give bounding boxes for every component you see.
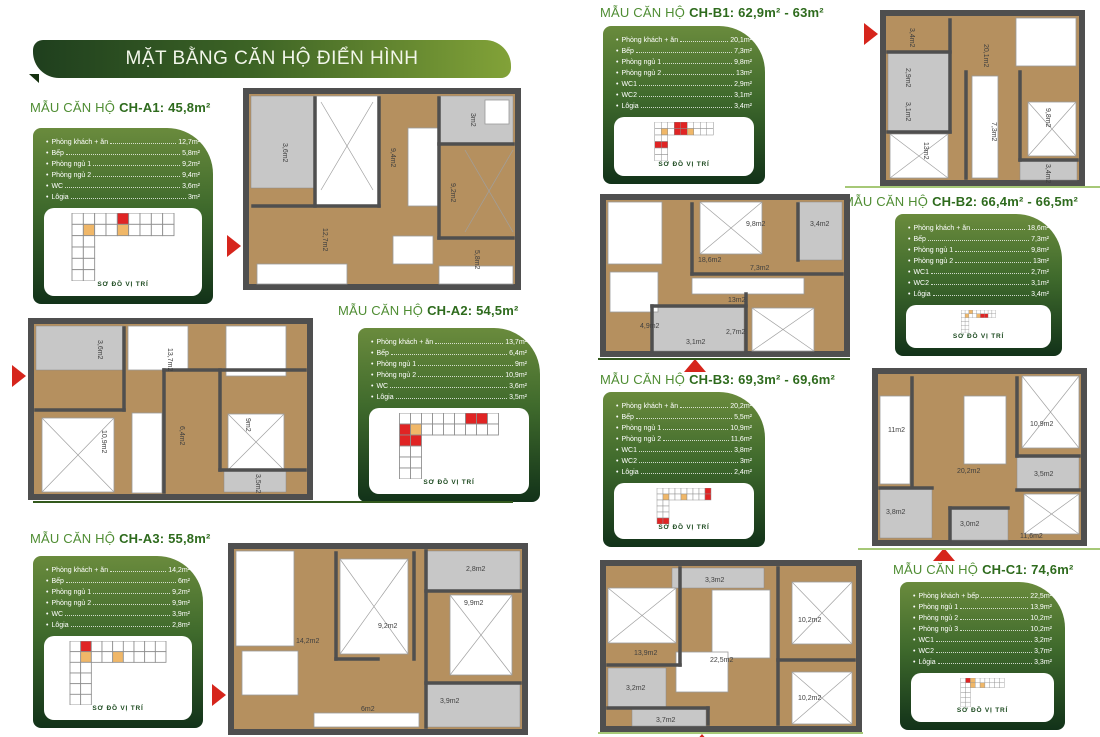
plan-room-label: 10,2m2 (798, 695, 821, 702)
room-name: Lôgia (51, 192, 68, 203)
plan-room-label: 5,8m2 (473, 250, 480, 270)
spec-row: •Phòng ngủ 19,8m² (908, 245, 1049, 256)
room-name: Phòng khách + ăn (376, 337, 433, 348)
room-area: 9,2m² (182, 159, 200, 170)
plan-room-label: 9,2m2 (449, 183, 456, 203)
room-name: Phòng khách + ăn (51, 565, 108, 576)
room-area: 10,9m² (505, 370, 527, 381)
plan-room-label: 13,9m2 (634, 650, 657, 657)
plan-room-label: 10,2m2 (798, 617, 821, 624)
room-area: 6,4m² (509, 348, 527, 359)
room-name: WC (51, 609, 63, 620)
heading-prefix: MẪU CĂN HỘ (30, 531, 115, 546)
apartment-heading-ch-b1: MẪU CĂN HỘCH-B1: 62,9m² - 63m² (600, 5, 824, 20)
room-area: 3,6m² (182, 181, 200, 192)
room-name: Phòng khách + ăn (621, 401, 678, 412)
spec-row: •Phòng ngủ 19,2m² (46, 159, 200, 170)
floor-plan-ch-c1: 3,3m213,9m222,5m210,2m210,2m23,2m23,7m2 (600, 560, 862, 732)
spec-row: •Phòng ngủ 213m² (908, 256, 1049, 267)
room-area: 3,2m² (1034, 635, 1052, 646)
room-name: Phòng ngủ 2 (51, 170, 91, 181)
room-area: 3,1m² (1031, 278, 1049, 289)
room-name: Lôgia (376, 392, 393, 403)
room-area: 9,8m² (734, 57, 752, 68)
plan-room-label: 3,0m2 (960, 521, 980, 528)
room-area: 6m² (178, 576, 190, 587)
spec-row: •WC23,7m² (913, 646, 1052, 657)
spec-box-ch-b3: •Phòng khách + ăn20,2m²•Bếp5,5m²•Phòng n… (603, 392, 765, 547)
spec-row: •WC12,7m² (908, 267, 1049, 278)
room-name: WC2 (621, 90, 637, 101)
spec-row: •Lôgia3m² (46, 192, 200, 203)
spec-box-ch-c1: •Phòng khách + bếp22,5m²•Phòng ngủ 113,9… (900, 582, 1065, 730)
heading-prefix: MẪU CĂN HỘ (600, 372, 685, 387)
room-area: 7,3m² (734, 46, 752, 57)
section-divider (858, 548, 1100, 550)
spec-row: •Phòng khách + bếp22,5m² (913, 591, 1052, 602)
heading-prefix: MẪU CĂN HỘ (843, 194, 928, 209)
room-name: WC2 (918, 646, 934, 657)
room-name: Bếp (51, 148, 63, 159)
plan-room-label: 3,8m2 (886, 509, 906, 516)
apartment-heading-ch-a2: MẪU CĂN HỘCH-A2: 54,5m² (338, 303, 519, 318)
floor-plan-ch-b1: 3,4m22,9m23,1m213m220,1m27,3m29,8m23,4m2 (880, 10, 1085, 186)
spec-row: •Bếp5,8m² (46, 148, 200, 159)
plan-room-label: 20,1m2 (982, 44, 989, 67)
room-area: 3,7m² (1034, 646, 1052, 657)
site-caption: SƠ ĐỒ VỊ TRÍ (910, 333, 1047, 345)
room-area: 3,4m² (734, 101, 752, 112)
plan-room-label: 7,3m2 (990, 122, 997, 142)
floor-plan-ch-b3: 11m220,2m210,9m23,5m23,8m23,0m211,6m2 (872, 368, 1087, 546)
room-area: 13m² (736, 68, 752, 79)
spec-row: •WC13,2m² (913, 635, 1052, 646)
section-divider (598, 358, 850, 360)
plan-room-label: 10,9m2 (1030, 421, 1053, 428)
section-divider (598, 732, 863, 734)
room-name: Phòng khách + ăn (621, 35, 678, 46)
spec-box-ch-b2: •Phòng khách + ăn18,6m²•Bếp7,3m²•Phòng n… (895, 214, 1062, 356)
location-card: SƠ ĐỒ VỊ TRÍ (906, 305, 1051, 348)
page-title: MẶT BẰNG CĂN HỘ ĐIỂN HÌNH (126, 48, 419, 70)
heading-title: CH-A2: 54,5m² (427, 303, 518, 318)
room-area: 2,4m² (734, 467, 752, 478)
heading-title: CH-A3: 55,8m² (119, 531, 210, 546)
site-caption: SƠ ĐỒ VỊ TRÍ (48, 705, 188, 717)
room-name: Bếp (51, 576, 63, 587)
site-caption: SƠ ĐỒ VỊ TRÍ (618, 524, 750, 536)
room-area: 10,9m² (730, 423, 752, 434)
room-area: 9,9m² (172, 598, 190, 609)
spec-row: •Phòng ngủ 113,9m² (913, 602, 1052, 613)
spec-row: •Phòng ngủ 210,9m² (371, 370, 527, 381)
heading-prefix: MẪU CĂN HỘ (600, 5, 685, 20)
plan-room-label: 4,9m2 (640, 323, 660, 330)
plan-room-label: 14,2m2 (296, 638, 319, 645)
location-grid (915, 678, 1050, 707)
apartment-heading-ch-a3: MẪU CĂN HỘCH-A3: 55,8m² (30, 531, 211, 546)
room-area: 14,2m² (168, 565, 190, 576)
apartment-heading-ch-b3: MẪU CĂN HỘCH-B3: 69,3m² - 69,6m² (600, 372, 835, 387)
heading-title: CH-B2: 66,4m² - 66,5m² (932, 194, 1078, 209)
spec-row: •Phòng khách + ăn12,7m² (46, 137, 200, 148)
room-area: 3m² (188, 192, 200, 203)
location-card: SƠ ĐỒ VỊ TRÍ (911, 673, 1054, 722)
spec-row: •Phòng ngủ 19,8m² (616, 57, 752, 68)
room-area: 20,2m² (730, 401, 752, 412)
entrance-marker-icon (12, 365, 26, 387)
heading-title: CH-A1: 45,8m² (119, 100, 210, 115)
room-area: 3,5m² (509, 392, 527, 403)
room-name: WC1 (621, 79, 637, 90)
room-name: Phòng ngủ 1 (376, 359, 416, 370)
site-caption: SƠ ĐỒ VỊ TRÍ (618, 161, 750, 173)
entrance-marker-icon (227, 235, 241, 257)
spec-row: •WC13,8m² (616, 445, 752, 456)
heading-prefix: MẪU CĂN HỘ (30, 100, 115, 115)
plan-room-label: 10,9m2 (100, 430, 107, 453)
plan-room-label: 20,2m2 (957, 468, 980, 475)
plan-room-label: 6,4m2 (178, 426, 185, 446)
plan-room-label: 3,6m2 (281, 143, 288, 163)
room-name: Phòng khách + bếp (918, 591, 979, 602)
room-area: 10,2m² (1030, 613, 1052, 624)
room-name: WC2 (621, 456, 637, 467)
room-name: Lôgia (918, 657, 935, 668)
room-name: Lôgia (621, 467, 638, 478)
spec-row: •Phòng khách + ăn14,2m² (46, 565, 190, 576)
room-area: 9,8m² (1031, 245, 1049, 256)
room-name: Phòng ngủ 1 (51, 159, 91, 170)
plan-room-label: 6m2 (361, 706, 375, 713)
spec-row: •Phòng ngủ 19,2m² (46, 587, 190, 598)
spec-row: •Phòng ngủ 310,2m² (913, 624, 1052, 635)
spec-row: •Lôgia3,4m² (616, 101, 752, 112)
room-name: Bếp (621, 46, 633, 57)
floor-plan-ch-a1: 3,6m29,4m23m29,2m212,7m25,8m2 (243, 88, 521, 290)
site-caption: SƠ ĐỒ VỊ TRÍ (915, 707, 1050, 719)
spec-row: •WC3,6m² (46, 181, 200, 192)
spec-row: •Lôgia3,5m² (371, 392, 527, 403)
section-divider (33, 501, 513, 503)
spec-row: •Lôgia2,8m² (46, 620, 190, 631)
plan-room-label: 13,7m2 (166, 348, 173, 371)
spec-row: •WC12,9m² (616, 79, 752, 90)
spec-row: •Phòng ngủ 110,9m² (616, 423, 752, 434)
room-area: 3m² (740, 456, 752, 467)
plan-room-label: 3,1m2 (686, 339, 706, 346)
room-name: Phòng ngủ 1 (918, 602, 958, 613)
plan-room-label: 2,7m2 (726, 329, 746, 336)
spec-row: •WC23,1m² (908, 278, 1049, 289)
room-area: 3,1m² (734, 90, 752, 101)
heading-prefix: MẪU CĂN HỘ (338, 303, 423, 318)
spec-row: •Lôgia2,4m² (616, 467, 752, 478)
spec-row: •Phòng ngủ 19m² (371, 359, 527, 370)
plan-room-label: 3,4m2 (1044, 164, 1051, 184)
spec-row: •WC23,1m² (616, 90, 752, 101)
room-name: Lôgia (621, 101, 638, 112)
plan-room-label: 11,6m2 (1020, 533, 1043, 540)
plan-room-label: 3,3m2 (705, 577, 725, 584)
spec-row: •Lôgia3,3m² (913, 657, 1052, 668)
room-name: Phòng khách + ăn (913, 223, 970, 234)
room-area: 10,2m² (1030, 624, 1052, 635)
room-name: Phòng khách + ăn (51, 137, 108, 148)
room-name: Bếp (376, 348, 388, 359)
room-list: •Phòng khách + bếp22,5m²•Phòng ngủ 113,9… (911, 591, 1054, 671)
page-title-banner: MẶT BẰNG CĂN HỘ ĐIỂN HÌNH (33, 40, 511, 78)
room-area: 9m² (515, 359, 527, 370)
location-grid (48, 213, 198, 281)
room-area: 22,5m² (1030, 591, 1052, 602)
apartment-heading-ch-b2: MẪU CĂN HỘCH-B2: 66,4m² - 66,5m² (843, 194, 1078, 209)
plan-room-label: 3,6m2 (96, 340, 103, 360)
spec-row: •Phòng khách + ăn20,1m² (616, 35, 752, 46)
room-name: WC1 (913, 267, 929, 278)
location-card: SƠ ĐỒ VỊ TRÍ (369, 408, 529, 494)
room-area: 11,6m² (731, 434, 752, 445)
room-name: WC2 (913, 278, 929, 289)
room-list: •Phòng khách + ăn13,7m²•Bếp6,4m²•Phòng n… (369, 337, 529, 406)
plan-room-label: 3,4m2 (810, 221, 830, 228)
plan-room-label: 12,7m2 (321, 228, 328, 251)
room-area: 3,3m² (1034, 657, 1052, 668)
apartment-heading-ch-c1: MẪU CĂN HỘCH-C1: 74,6m² (893, 562, 1074, 577)
spec-row: •Bếp6m² (46, 576, 190, 587)
room-area: 9,4m² (182, 170, 200, 181)
plan-room-label: 9,2m2 (378, 623, 398, 630)
plan-room-label: 9m2 (244, 418, 251, 432)
plan-room-label: 3,2m2 (626, 685, 646, 692)
room-area: 5,8m² (182, 148, 200, 159)
room-area: 3,8m² (734, 445, 752, 456)
room-area: 3,9m² (172, 609, 190, 620)
room-area: 7,3m² (1031, 234, 1049, 245)
floor-plan-ch-a2: 3,6m213,7m210,9m26,4m29m23,5m2 (28, 318, 313, 500)
spec-row: •WC3,9m² (46, 609, 190, 620)
plan-room-label: 13m2 (922, 142, 929, 160)
room-area: 2,8m² (172, 620, 190, 631)
location-grid (618, 122, 750, 161)
location-card: SƠ ĐỒ VỊ TRÍ (44, 636, 192, 720)
room-name: Phòng ngủ 1 (913, 245, 953, 256)
floor-plan-ch-a3: 2,8m29,9m29,2m214,2m26m23,9m2 (228, 543, 528, 735)
spec-row: •Bếp7,3m² (616, 46, 752, 57)
floor-plan-ch-b2: 18,6m29,8m23,4m27,3m213m24,9m23,1m22,7m2 (600, 194, 850, 357)
spec-row: •Phòng khách + ăn13,7m² (371, 337, 527, 348)
heading-prefix: MẪU CĂN HỘ (893, 562, 978, 577)
room-name: WC1 (918, 635, 934, 646)
spec-row: •Lôgia3,4m² (908, 289, 1049, 300)
site-caption: SƠ ĐỒ VỊ TRÍ (373, 479, 525, 491)
plan-room-label: 11m2 (888, 427, 905, 434)
spec-box-ch-a3: •Phòng khách + ăn14,2m²•Bếp6m²•Phòng ngủ… (33, 556, 203, 728)
room-name: Lôgia (51, 620, 68, 631)
location-grid (910, 310, 1047, 333)
plan-room-label: 3,7m2 (656, 717, 676, 724)
room-list: •Phòng khách + ăn20,2m²•Bếp5,5m²•Phòng n… (614, 401, 754, 481)
spec-box-ch-a1: •Phòng khách + ăn12,7m²•Bếp5,8m²•Phòng n… (33, 128, 213, 304)
room-area: 5,5m² (734, 412, 752, 423)
room-name: Lôgia (913, 289, 930, 300)
spec-row: •Phòng khách + ăn18,6m² (908, 223, 1049, 234)
plan-room-label: 3,5m2 (254, 474, 261, 494)
location-card: SƠ ĐỒ VỊ TRÍ (614, 483, 754, 539)
room-name: Phòng ngủ 1 (621, 423, 661, 434)
room-name: Phòng ngủ 1 (51, 587, 91, 598)
location-grid (48, 641, 188, 705)
spec-row: •Phòng ngủ 211,6m² (616, 434, 752, 445)
room-area: 13,9m² (1030, 602, 1052, 613)
plan-room-label: 9,8m2 (746, 221, 766, 228)
location-card: SƠ ĐỒ VỊ TRÍ (44, 208, 202, 296)
spec-box-ch-b1: •Phòng khách + ăn20,1m²•Bếp7,3m²•Phòng n… (603, 26, 765, 184)
spec-row: •Phòng ngủ 210,2m² (913, 613, 1052, 624)
spec-row: •WC3,6m² (371, 381, 527, 392)
plan-room-label: 3,9m2 (440, 698, 460, 705)
room-name: Phòng ngủ 2 (913, 256, 953, 267)
room-area: 9,2m² (172, 587, 190, 598)
entrance-marker-icon (864, 23, 878, 45)
plan-room-label: 7,3m2 (750, 265, 770, 272)
room-area: 20,1m² (730, 35, 752, 46)
room-area: 12,7m² (178, 137, 200, 148)
location-grid (373, 413, 525, 479)
room-list: •Phòng khách + ăn20,1m²•Bếp7,3m²•Phòng n… (614, 35, 754, 115)
room-name: Phòng ngủ 2 (51, 598, 91, 609)
plan-room-label: 9,4m2 (389, 148, 396, 168)
plan-room-label: 3m2 (469, 113, 476, 127)
spec-row: •WC23m² (616, 456, 752, 467)
plan-room-label: 3,5m2 (1034, 471, 1054, 478)
entrance-marker-icon (212, 684, 226, 706)
room-area: 2,7m² (1031, 267, 1049, 278)
room-name: WC1 (621, 445, 637, 456)
heading-title: CH-B3: 69,3m² - 69,6m² (689, 372, 835, 387)
room-name: Bếp (621, 412, 633, 423)
plan-room-label: 2,9m2 (904, 68, 911, 88)
apartment-heading-ch-a1: MẪU CĂN HỘCH-A1: 45,8m² (30, 100, 211, 115)
room-area: 18,6m² (1027, 223, 1049, 234)
room-area: 3,4m² (1031, 289, 1049, 300)
heading-title: CH-C1: 74,6m² (982, 562, 1073, 577)
spec-row: •Phòng ngủ 29,9m² (46, 598, 190, 609)
room-name: Phòng ngủ 1 (621, 57, 661, 68)
room-name: WC (376, 381, 388, 392)
plan-room-label: 18,6m2 (698, 257, 721, 264)
room-name: Phòng ngủ 2 (621, 434, 661, 445)
spec-row: •Phòng ngủ 213m² (616, 68, 752, 79)
room-area: 3,6m² (509, 381, 527, 392)
spec-row: •Phòng ngủ 29,4m² (46, 170, 200, 181)
location-card: SƠ ĐỒ VỊ TRÍ (614, 117, 754, 176)
room-name: Phòng ngủ 2 (621, 68, 661, 79)
plan-room-label: 3,1m2 (904, 102, 911, 122)
spec-row: •Phòng khách + ăn20,2m² (616, 401, 752, 412)
plan-room-label: 22,5m2 (710, 657, 733, 664)
spec-row: •Bếp5,5m² (616, 412, 752, 423)
room-name: Phòng ngủ 3 (918, 624, 958, 635)
spec-box-ch-a2: •Phòng khách + ăn13,7m²•Bếp6,4m²•Phòng n… (358, 328, 540, 502)
room-name: Bếp (913, 234, 925, 245)
room-area: 13m² (1033, 256, 1049, 267)
room-list: •Phòng khách + ăn14,2m²•Bếp6m²•Phòng ngủ… (44, 565, 192, 634)
section-divider (845, 186, 1100, 188)
entrance-marker-icon (684, 359, 706, 372)
heading-title: CH-B1: 62,9m² - 63m² (689, 5, 824, 20)
room-list: •Phòng khách + ăn18,6m²•Bếp7,3m²•Phòng n… (906, 223, 1051, 303)
plan-room-label: 9,9m2 (464, 600, 484, 607)
brochure-page: MẶT BẰNG CĂN HỘ ĐIỂN HÌNH MẪU CĂN HỘCH-A… (0, 0, 1100, 737)
banner-fold-decoration (29, 74, 39, 83)
spec-row: •Bếp6,4m² (371, 348, 527, 359)
room-name: Phòng ngủ 2 (376, 370, 416, 381)
room-name: WC (51, 181, 63, 192)
site-caption: SƠ ĐỒ VỊ TRÍ (48, 281, 198, 293)
plan-room-label: 2,8m2 (466, 566, 486, 573)
plan-room-label: 3,4m2 (908, 28, 915, 48)
room-name: Phòng ngủ 2 (918, 613, 958, 624)
room-list: •Phòng khách + ăn12,7m²•Bếp5,8m²•Phòng n… (44, 137, 202, 206)
room-area: 2,9m² (734, 79, 752, 90)
spec-row: •Bếp7,3m² (908, 234, 1049, 245)
location-grid (618, 488, 750, 524)
room-area: 13,7m² (505, 337, 527, 348)
plan-room-label: 13m2 (728, 297, 746, 304)
plan-room-label: 9,8m2 (1044, 108, 1051, 128)
